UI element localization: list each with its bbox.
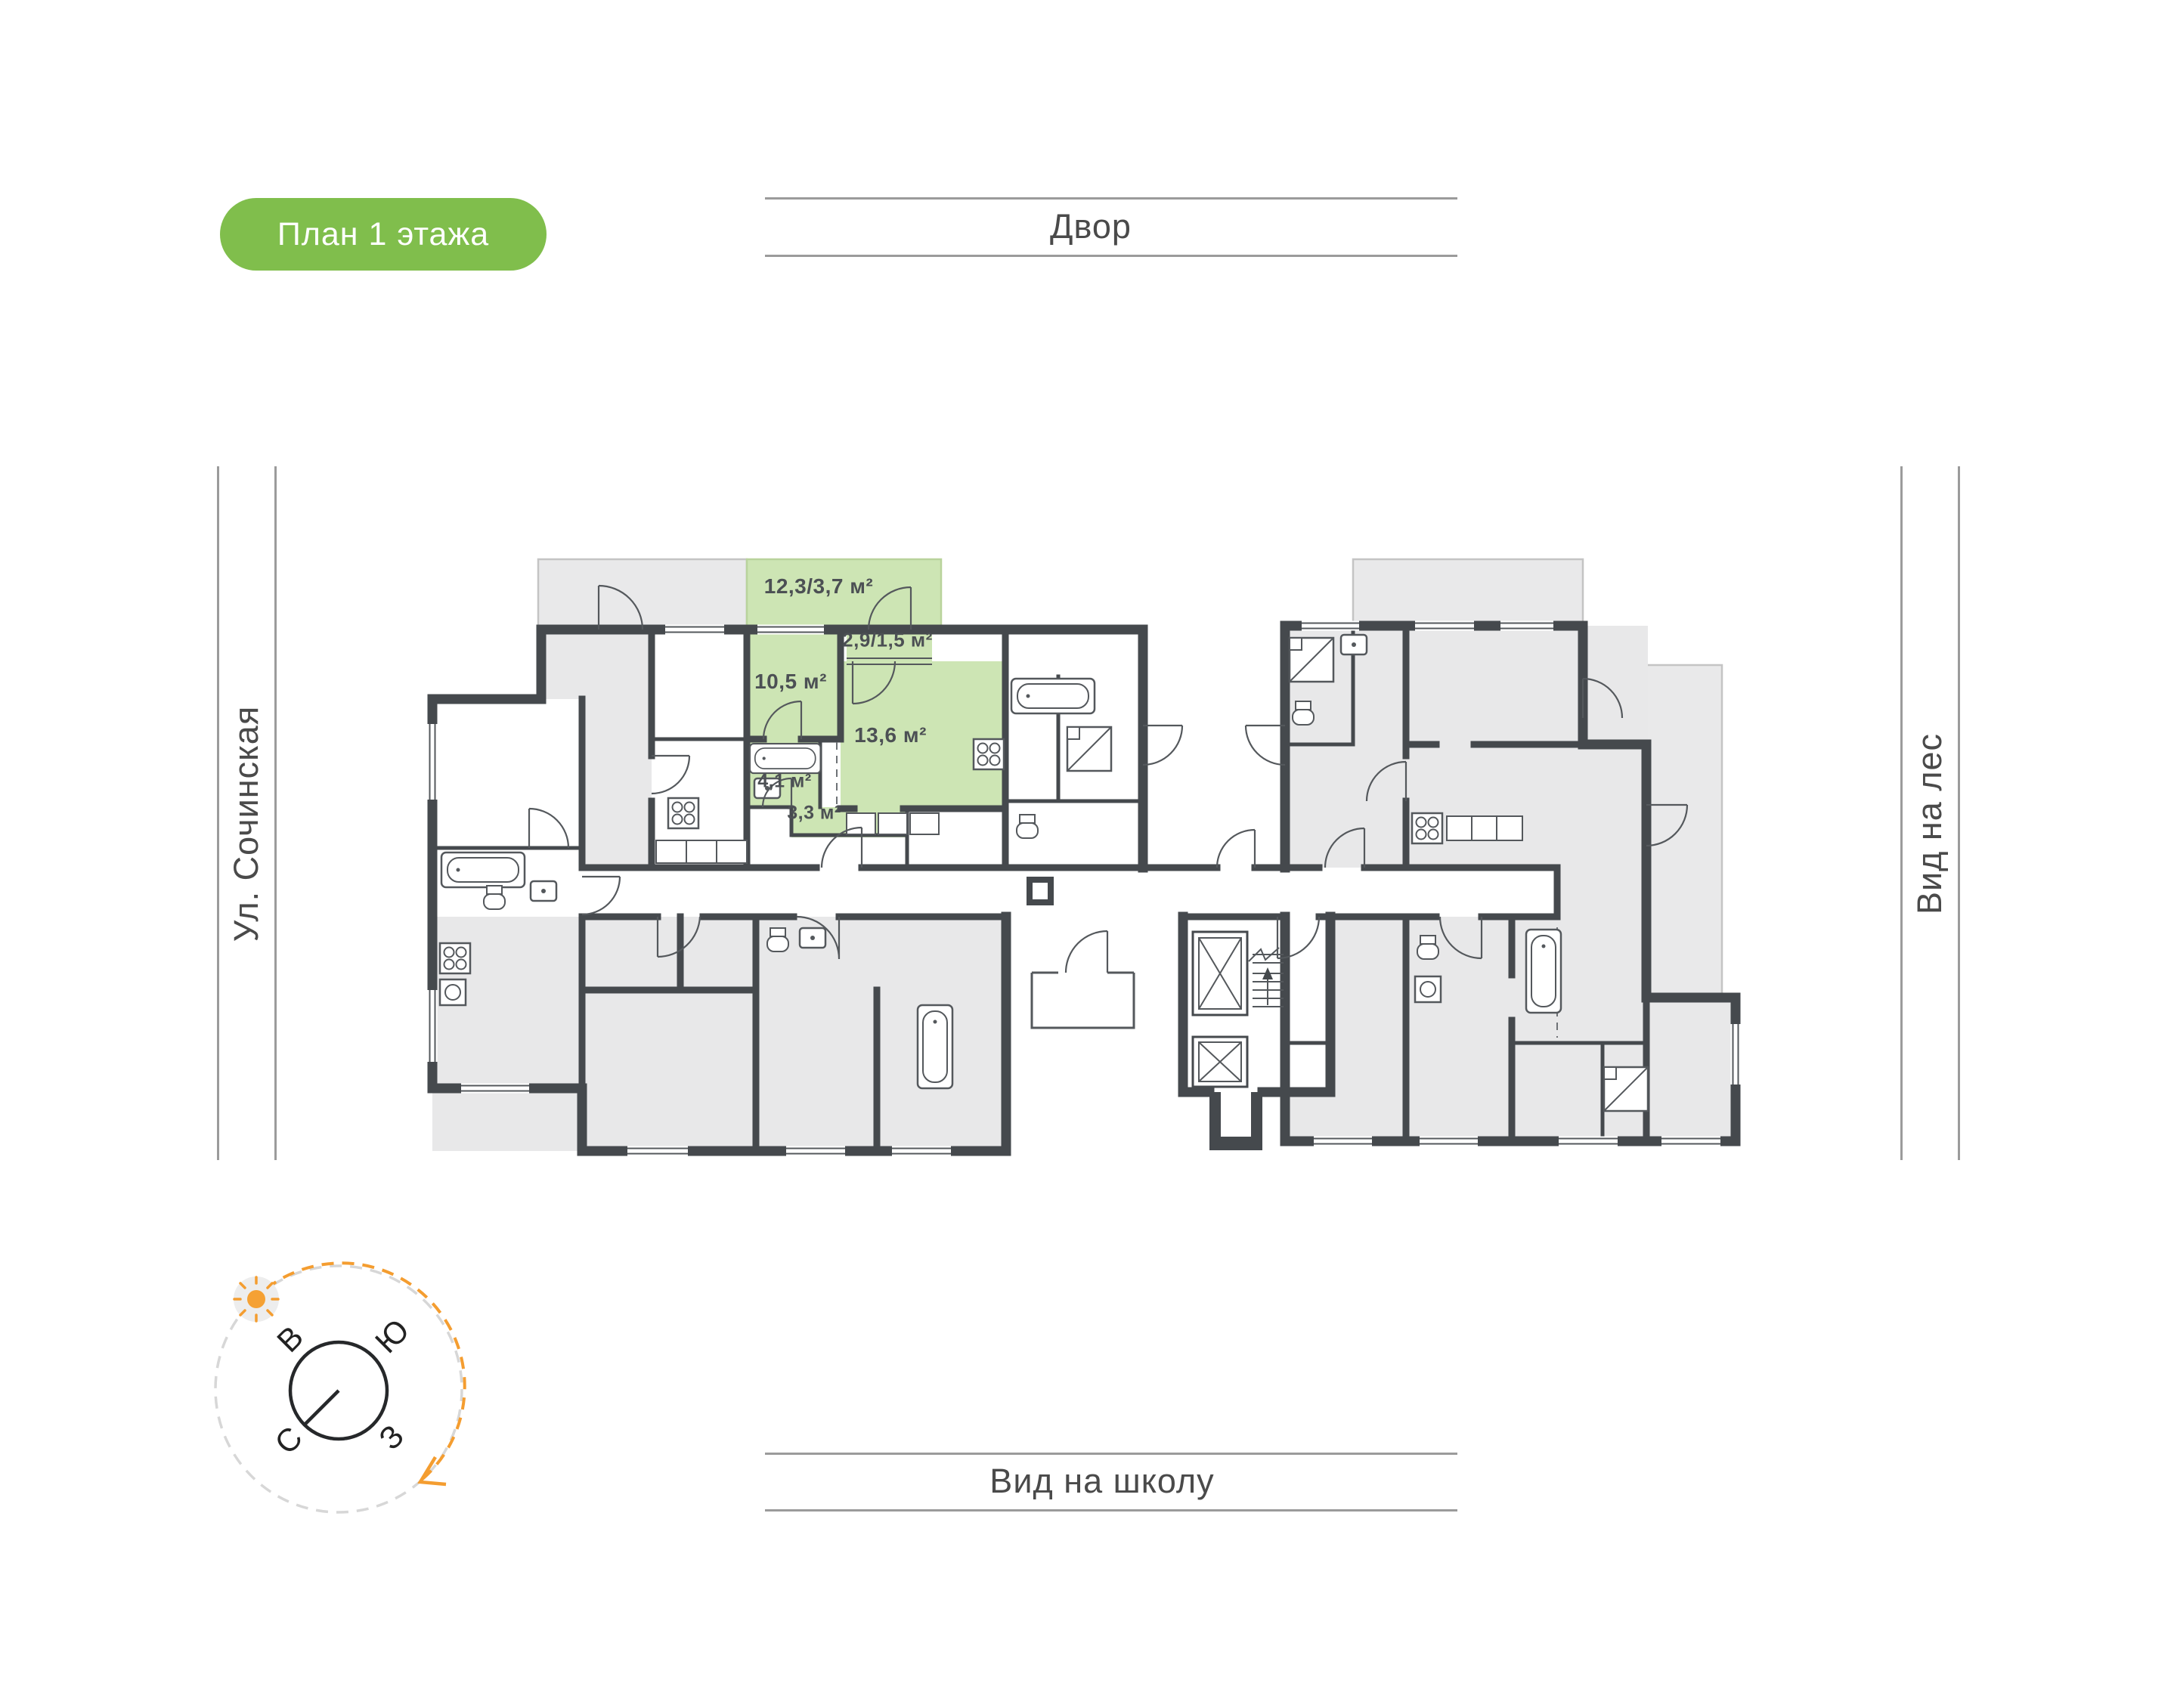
right-rule-outer xyxy=(1958,466,1960,1160)
elevator-shaft-icon xyxy=(1193,932,1247,1015)
stage: В Ю С З План 1 этажа Двор Ул. Сочинская … xyxy=(0,0,2177,1708)
room-area-label-room: 10,5 м² xyxy=(754,670,827,694)
room-area-label-balcony: 2,9/1,5 м² xyxy=(842,629,933,652)
bottom-rule-lower xyxy=(765,1509,1457,1512)
courtyard-label: Двор xyxy=(1050,207,1132,246)
terrace-right-top xyxy=(1353,559,1583,626)
right-rule-inner xyxy=(1900,466,1903,1160)
forest-view-label: Вид на лес xyxy=(1910,733,1949,914)
terrace-left xyxy=(538,559,747,629)
compass-east-label: В xyxy=(270,1319,310,1359)
room-area-label-bathroom: 4,1 м² xyxy=(757,771,812,793)
compass-arrow-icon xyxy=(420,1457,446,1484)
sun-icon xyxy=(234,1276,279,1322)
floor-plan-page: { "badge": { "label": "План 1 этажа" }, … xyxy=(0,0,2177,1708)
compass-south-label: Ю xyxy=(368,1312,416,1360)
highlighted-apartment[interactable] xyxy=(747,559,1005,837)
left-rule-inner xyxy=(274,466,277,1160)
bottom-rule-upper xyxy=(765,1453,1457,1455)
room-area-label-terrace: 12,3/3,7 м² xyxy=(764,574,874,599)
elevator-shaft-icon xyxy=(1193,1037,1247,1087)
room-area-label-hallway: 3,3 м² xyxy=(787,803,841,825)
compass-rose: В Ю С З xyxy=(215,1263,465,1512)
floor-badge-label: План 1 этажа xyxy=(277,216,489,253)
street-label: Ул. Сочинская xyxy=(227,706,266,942)
room-fills xyxy=(432,559,1736,1151)
floor-badge: План 1 этажа xyxy=(220,198,547,271)
compass-north-label: С xyxy=(268,1419,309,1461)
top-rule-lower xyxy=(765,255,1457,257)
top-rule-upper xyxy=(765,197,1457,200)
left-rule-outer xyxy=(217,466,219,1160)
compass-west-label: З xyxy=(372,1418,410,1456)
room-area-label-kitchen: 13,6 м² xyxy=(854,723,927,747)
school-view-label: Вид на школу xyxy=(989,1462,1214,1501)
